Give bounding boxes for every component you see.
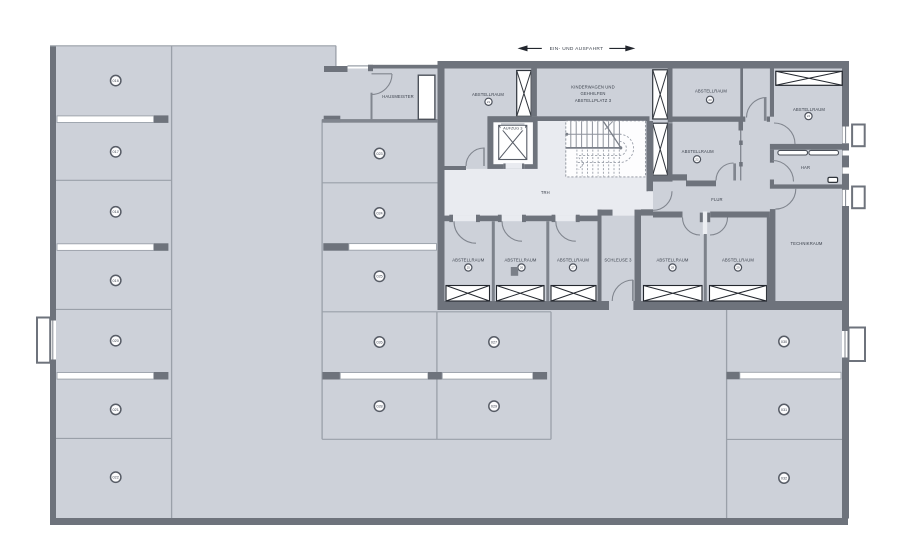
svg-text:24: 24 (807, 114, 811, 118)
svg-text:ABSTELLRAUM: ABSTELLRAUM (722, 258, 754, 263)
svg-text:ABSTELLRAUM: ABSTELLRAUM (472, 92, 504, 97)
svg-text:ABSTELLRAUM: ABSTELLRAUM (695, 88, 727, 93)
svg-text:017: 017 (113, 150, 119, 154)
svg-text:019: 019 (113, 279, 119, 283)
svg-text:027: 027 (491, 340, 497, 344)
svg-text:022: 022 (113, 476, 119, 480)
svg-text:025: 025 (376, 275, 382, 279)
svg-text:27: 27 (571, 266, 575, 270)
svg-text:HAUSMEISTER: HAUSMEISTER (382, 94, 414, 99)
svg-text:031: 031 (781, 408, 787, 412)
svg-text:HAR: HAR (801, 165, 810, 170)
svg-text:ABSTELLRAUM: ABSTELLRAUM (452, 258, 484, 263)
svg-text:ABSTELLRAUM: ABSTELLRAUM (504, 258, 536, 263)
svg-text:GEHHILFEN: GEHHILFEN (580, 91, 605, 96)
svg-text:TECHNIKRAUM: TECHNIKRAUM (790, 241, 822, 246)
svg-text:029: 029 (491, 405, 497, 409)
svg-text:AUFZUG 3: AUFZUG 3 (503, 126, 522, 131)
svg-text:29: 29 (736, 266, 740, 270)
svg-text:26: 26 (520, 266, 524, 270)
svg-text:023: 023 (376, 152, 382, 156)
svg-text:SCHLEUSE 3: SCHLEUSE 3 (604, 257, 632, 262)
svg-text:026: 026 (376, 340, 382, 344)
svg-text:23: 23 (708, 98, 712, 102)
svg-text:25: 25 (467, 266, 471, 270)
svg-text:016: 016 (113, 79, 119, 83)
svg-text:ABSTELLRAUM: ABSTELLRAUM (793, 107, 825, 112)
svg-text:21: 21 (487, 100, 491, 104)
svg-text:TRH: TRH (541, 190, 550, 195)
svg-text:030: 030 (781, 340, 787, 344)
svg-text:ABSTELLRAUM: ABSTELLRAUM (682, 149, 714, 154)
svg-text:ABSTELLRAUM: ABSTELLRAUM (656, 258, 688, 263)
svg-text:024: 024 (376, 211, 382, 215)
svg-text:ABSTELLRAUM: ABSTELLRAUM (557, 258, 589, 263)
svg-text:KINDERWAGEN UND: KINDERWAGEN UND (571, 85, 614, 90)
svg-text:028: 028 (376, 405, 382, 409)
svg-text:28: 28 (671, 266, 675, 270)
svg-text:018: 018 (113, 210, 119, 214)
svg-text:EIN- UND AUSFAHRT: EIN- UND AUSFAHRT (550, 46, 604, 52)
svg-text:020: 020 (113, 339, 119, 343)
svg-text:032: 032 (781, 476, 787, 480)
svg-text:22: 22 (695, 157, 699, 161)
svg-text:FLUR: FLUR (711, 197, 722, 202)
svg-text:021: 021 (113, 408, 119, 412)
svg-text:ABSTELLPLATZ 3: ABSTELLPLATZ 3 (575, 98, 612, 103)
